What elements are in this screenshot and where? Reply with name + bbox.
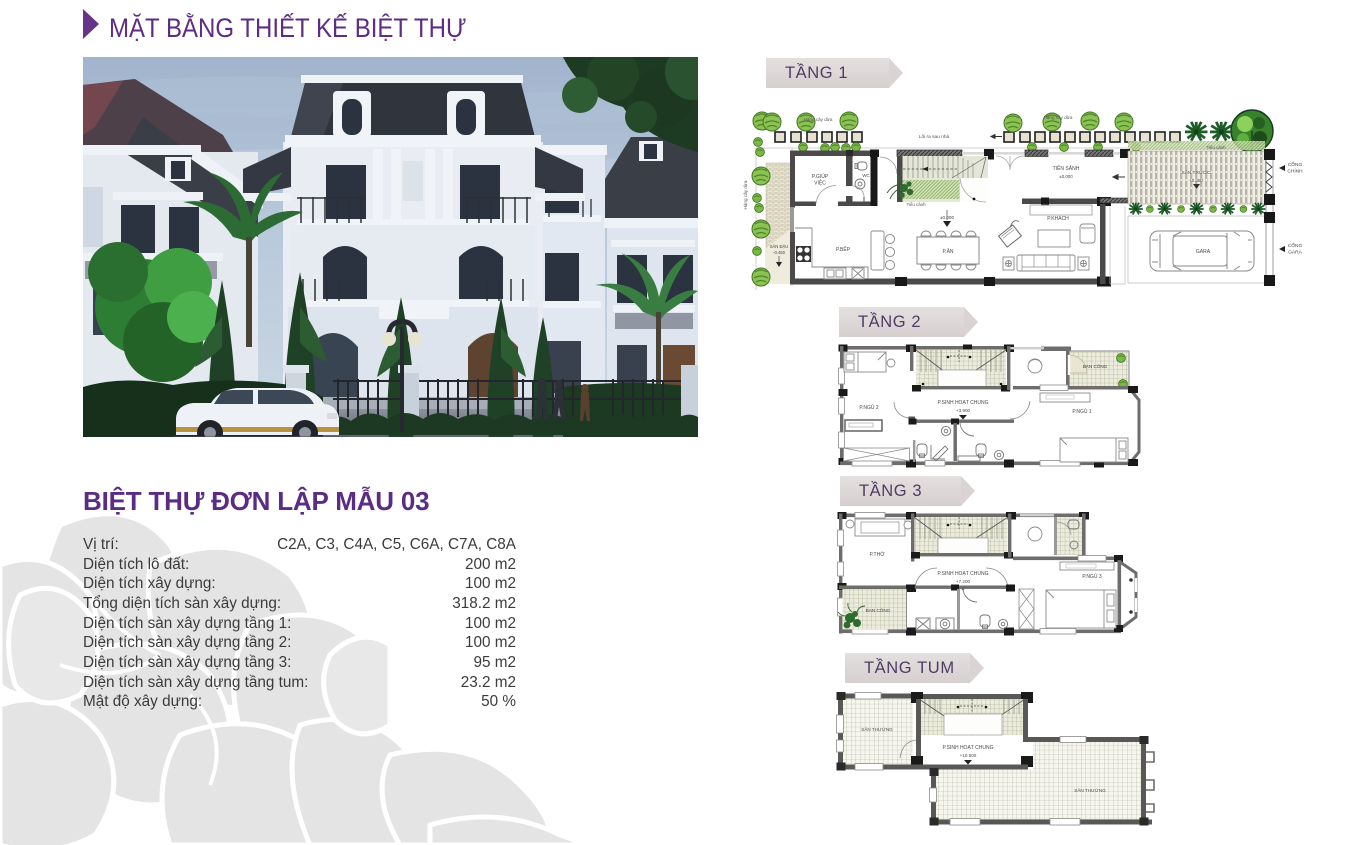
svg-text:GARA: GARA [1288, 250, 1302, 256]
svg-text:WC: WC [862, 173, 869, 178]
svg-text:P.NGỦ 1: P.NGỦ 1 [1072, 408, 1092, 415]
svg-text:P.KHÁCH: P.KHÁCH [1047, 215, 1069, 222]
svg-text:+7.200: +7.200 [956, 579, 971, 584]
svg-text:+0.450: +0.450 [1189, 178, 1203, 183]
svg-text:P.GIÚP: P.GIÚP [812, 173, 829, 180]
svg-text:-0.450: -0.450 [773, 250, 786, 255]
svg-text:P.THỜ: P.THỜ [869, 551, 885, 558]
svg-text:Hàng cây dừa: Hàng cây dừa [804, 117, 833, 122]
svg-text:CỔNG: CỔNG [1288, 161, 1303, 168]
svg-text:P.ĂN: P.ĂN [942, 248, 953, 255]
svg-text:CHÍNH: CHÍNH [1287, 168, 1303, 175]
svg-text:GARA: GARA [1196, 249, 1211, 255]
svg-text:SÂN ĐẬU: SÂN ĐẬU [770, 244, 789, 249]
svg-text:P.NGỦ 3: P.NGỦ 3 [1082, 573, 1102, 580]
svg-text:Hàng cây dừa: Hàng cây dừa [1044, 115, 1073, 120]
svg-text:Hàng cây dừa: Hàng cây dừa [743, 180, 748, 209]
svg-text:+3.900: +3.900 [956, 408, 971, 413]
svg-text:P.SINH HOẠT CHUNG: P.SINH HOẠT CHUNG [938, 571, 989, 577]
svg-text:±0.000: ±0.000 [1059, 174, 1073, 179]
svg-text:TIỀN SẢNH: TIỀN SẢNH [1053, 165, 1080, 172]
svg-text:P.SINH HOẠT CHUNG: P.SINH HOẠT CHUNG [938, 400, 989, 406]
svg-text:P.BẾP: P.BẾP [836, 246, 851, 253]
svg-text:Lối ra sau nhà: Lối ra sau nhà [919, 134, 950, 140]
svg-text:P.NGỦ 2: P.NGỦ 2 [859, 404, 879, 411]
svg-text:CỔNG: CỔNG [1288, 242, 1303, 249]
svg-text:BAN CÔNG: BAN CÔNG [866, 607, 891, 613]
svg-text:Tiểu cảnh: Tiểu cảnh [906, 202, 926, 207]
svg-text:BAN CÔNG: BAN CÔNG [1083, 363, 1108, 369]
svg-text:SÂN TRƯỚC: SÂN TRƯỚC [1181, 169, 1211, 176]
svg-text:Tiểu cảnh: Tiểu cảnh [1206, 145, 1226, 150]
svg-text:VIỆC: VIỆC [814, 179, 826, 187]
